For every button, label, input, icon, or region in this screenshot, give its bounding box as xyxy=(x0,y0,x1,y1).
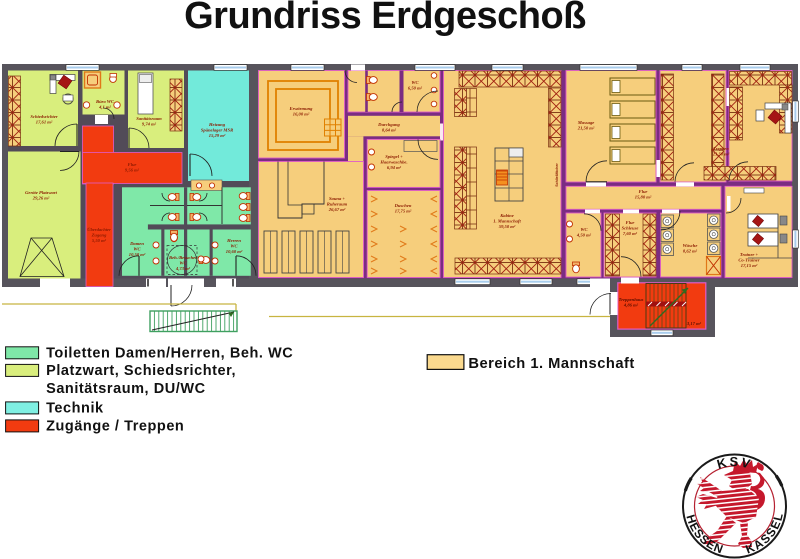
svg-text:Platzwart, Schiedsrichter,: Platzwart, Schiedsrichter, xyxy=(46,363,236,379)
svg-text:Beh./Besucher: Beh./Besucher xyxy=(168,255,197,260)
svg-text:Wäsche: Wäsche xyxy=(683,243,698,248)
svg-text:17,15 m²: 17,15 m² xyxy=(741,263,758,268)
svg-text:8,64 m²: 8,64 m² xyxy=(382,128,397,133)
svg-text:WC: WC xyxy=(580,227,588,232)
svg-text:Kabine: Kabine xyxy=(499,213,514,218)
svg-text:Ruheraum: Ruheraum xyxy=(327,202,348,207)
svg-text:10,60 m²: 10,60 m² xyxy=(226,249,243,254)
svg-text:Herren: Herren xyxy=(226,238,241,243)
svg-text:15,80 m²: 15,80 m² xyxy=(635,195,652,200)
svg-text:26,67 m²: 26,67 m² xyxy=(328,207,346,212)
svg-text:Damen: Damen xyxy=(129,241,144,246)
svg-text:Flur: Flur xyxy=(639,189,648,194)
svg-text:4,86 m²: 4,86 m² xyxy=(623,303,639,308)
svg-text:16,00 m²: 16,00 m² xyxy=(293,112,310,117)
svg-text:1. Mannschaft: 1. Mannschaft xyxy=(493,219,521,224)
svg-text:Flur: Flur xyxy=(128,162,137,167)
svg-text:Spiegel +: Spiegel + xyxy=(385,154,403,159)
svg-text:6,50 m²: 6,50 m² xyxy=(408,86,423,91)
svg-text:15,29 m²: 15,29 m² xyxy=(209,133,226,138)
svg-text:8,62 m²: 8,62 m² xyxy=(683,249,698,254)
svg-text:Überdachter: Überdachter xyxy=(87,227,111,232)
svg-text:Haarwaschbe.: Haarwaschbe. xyxy=(379,160,407,165)
svg-text:WC: WC xyxy=(411,80,419,85)
svg-text:Sanitätsraum, DU/WC: Sanitätsraum, DU/WC xyxy=(46,381,206,397)
svg-text:Spänelager MSR: Spänelager MSR xyxy=(201,128,233,133)
svg-text:Schiedsrichter: Schiedsrichter xyxy=(30,114,58,119)
svg-text:9,74 m²: 9,74 m² xyxy=(142,122,157,127)
svg-text:9,56 m²: 9,56 m² xyxy=(125,168,140,173)
svg-text:Erwärmung: Erwärmung xyxy=(289,106,314,111)
svg-text:4,73 m²: 4,73 m² xyxy=(175,266,191,271)
svg-text:17,75 m²: 17,75 m² xyxy=(395,209,412,214)
svg-text:WC: WC xyxy=(133,247,141,252)
svg-text:21,50 m²: 21,50 m² xyxy=(712,152,730,157)
svg-text:Zugang: Zugang xyxy=(91,233,108,238)
svg-text:Flur: Flur xyxy=(626,220,635,225)
svg-text:Treppen: Treppen xyxy=(713,146,729,151)
svg-text:5,50 m²: 5,50 m² xyxy=(92,238,107,243)
svg-text:Grundriss Erdgeschoß: Grundriss Erdgeschoß xyxy=(184,0,586,37)
svg-text:WC: WC xyxy=(179,261,187,266)
svg-text:Toiletten Damen/Herren, Beh. W: Toiletten Damen/Herren, Beh. WC xyxy=(46,345,293,361)
svg-text:Massage: Massage xyxy=(577,120,595,125)
svg-text:3,17 m²: 3,17 m² xyxy=(686,321,702,326)
svg-text:Schließfächer: Schließfächer xyxy=(555,163,559,187)
svg-text:Co-Trainer: Co-Trainer xyxy=(738,258,759,263)
svg-text:Trainer +: Trainer + xyxy=(740,252,759,257)
svg-text:7,60 m²: 7,60 m² xyxy=(623,231,638,236)
svg-text:Geräte Platzwart: Geräte Platzwart xyxy=(25,190,57,195)
svg-text:Durchgang: Durchgang xyxy=(377,122,400,127)
svg-text:Schleuse: Schleuse xyxy=(622,226,639,231)
svg-text:Treppenhaus: Treppenhaus xyxy=(619,297,644,302)
svg-text:Heizung: Heizung xyxy=(208,122,226,127)
svg-text:59,50 m²: 59,50 m² xyxy=(499,224,516,229)
svg-text:4,1 m²: 4,1 m² xyxy=(98,105,111,110)
svg-text:Technik: Technik xyxy=(46,400,104,416)
svg-text:21,50 m²: 21,50 m² xyxy=(577,126,595,131)
svg-text:Büro WC: Büro WC xyxy=(95,99,115,104)
svg-text:10,50 m²: 10,50 m² xyxy=(129,252,146,257)
svg-text:6,94 m²: 6,94 m² xyxy=(387,165,402,170)
svg-text:WC: WC xyxy=(230,244,238,249)
svg-text:Sanitätsraum: Sanitätsraum xyxy=(136,116,162,121)
svg-text:Sauna +: Sauna + xyxy=(329,196,345,201)
svg-text:Duschen: Duschen xyxy=(394,203,412,208)
svg-text:Zugänge / Treppen: Zugänge / Treppen xyxy=(46,418,184,434)
svg-text:4,50 m²: 4,50 m² xyxy=(576,233,592,238)
svg-text:17,61 m²: 17,61 m² xyxy=(36,120,53,125)
svg-text:29,26 m²: 29,26 m² xyxy=(32,196,50,201)
svg-text:Bereich 1. Mannschaft: Bereich 1. Mannschaft xyxy=(468,356,634,372)
